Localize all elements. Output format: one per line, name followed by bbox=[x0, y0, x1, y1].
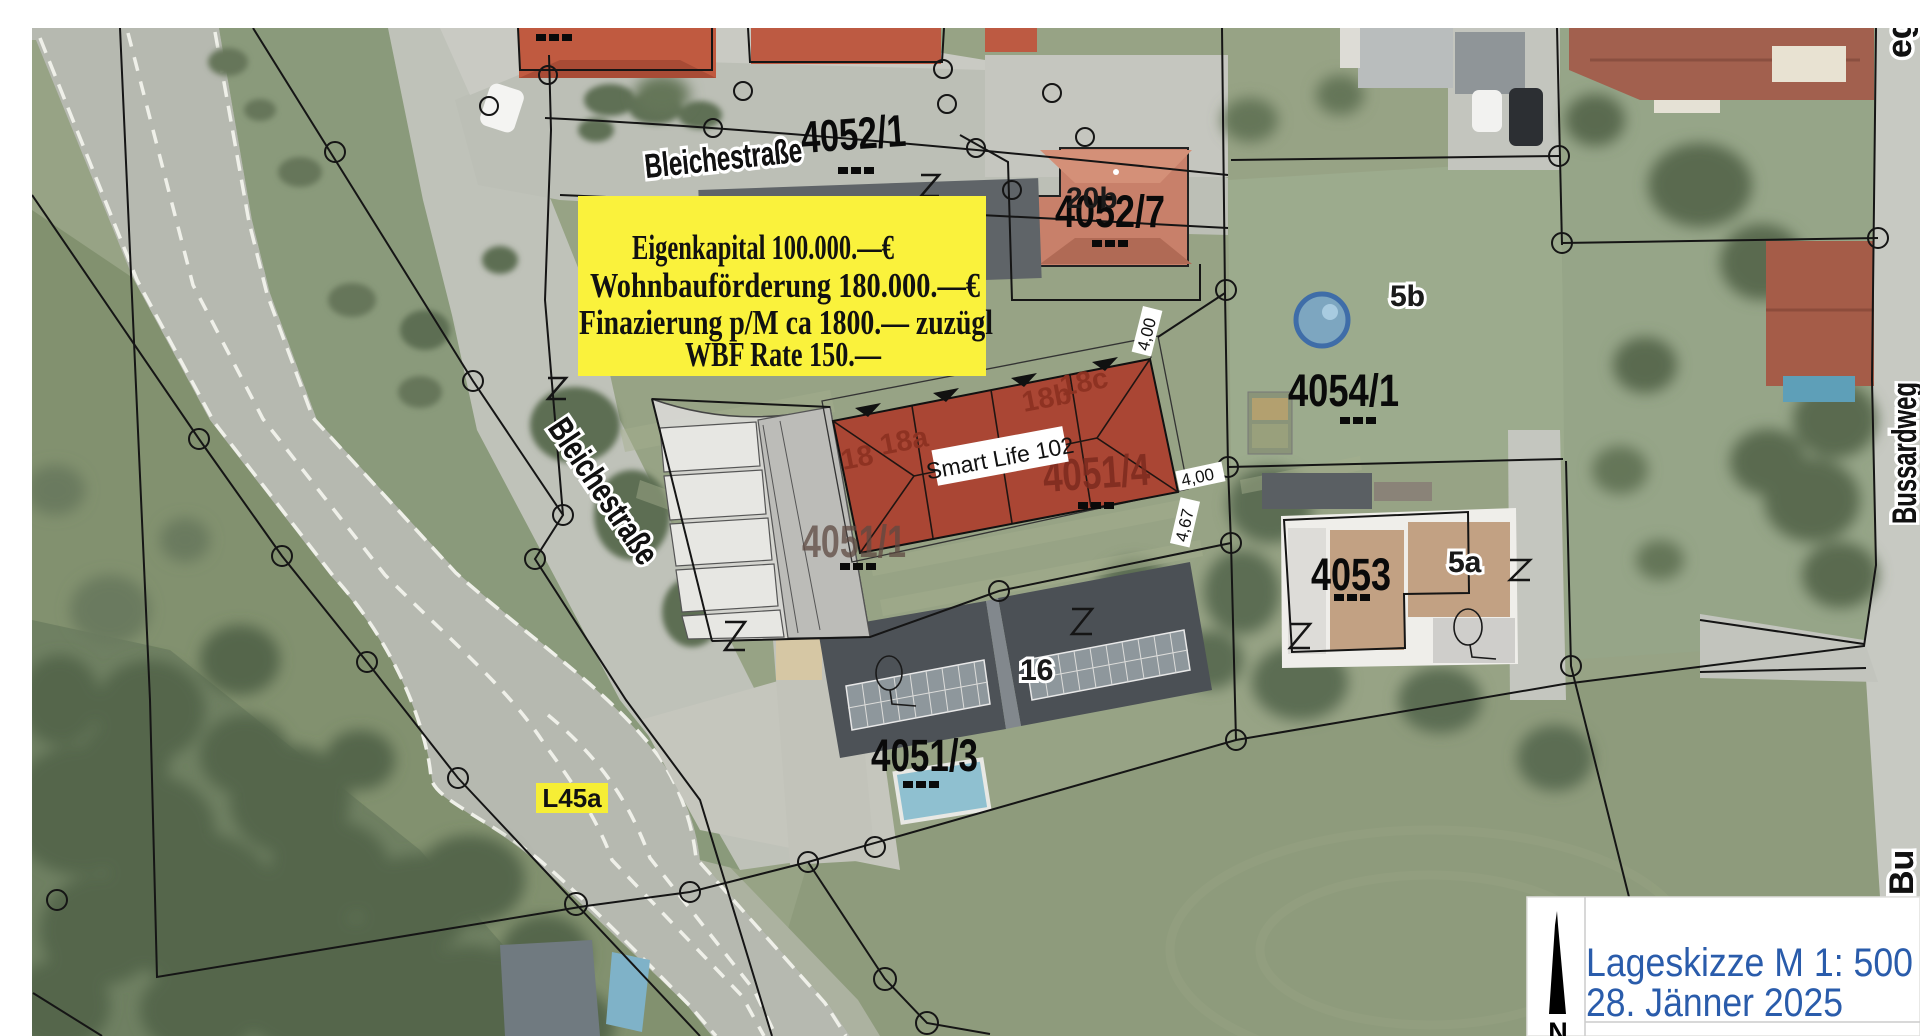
svg-text:Lageskizze M 1: 500: Lageskizze M 1: 500 bbox=[1586, 941, 1913, 985]
svg-text:Wohnbauförderung 180.000.—€: Wohnbauförderung 180.000.—€ bbox=[590, 266, 980, 305]
svg-text:5b: 5b bbox=[1390, 280, 1425, 313]
svg-text:N: N bbox=[1548, 1017, 1568, 1036]
svg-text:Eigenkapital 100.000.—€: Eigenkapital 100.000.—€ bbox=[632, 228, 894, 267]
svg-text:28. Jänner 2025: 28. Jänner 2025 bbox=[1586, 981, 1843, 1025]
svg-text:4053: 4053 bbox=[1311, 549, 1391, 600]
svg-text:4052/1: 4052/1 bbox=[799, 105, 907, 163]
svg-text:4051/1: 4051/1 bbox=[802, 516, 906, 567]
svg-text:WBF Rate 150.—: WBF Rate 150.— bbox=[685, 335, 882, 374]
svg-text:L45a: L45a bbox=[542, 783, 602, 813]
svg-text:4051/3: 4051/3 bbox=[871, 730, 978, 781]
svg-text:5a: 5a bbox=[1448, 546, 1482, 579]
svg-text:Bussardweg: Bussardweg bbox=[1886, 382, 1920, 524]
svg-text:Bu: Bu bbox=[1883, 850, 1920, 895]
svg-text:16: 16 bbox=[1020, 654, 1053, 687]
svg-text:20b: 20b bbox=[1066, 182, 1118, 215]
svg-text:18: 18 bbox=[838, 439, 876, 477]
svg-text:4054/1: 4054/1 bbox=[1288, 365, 1399, 416]
